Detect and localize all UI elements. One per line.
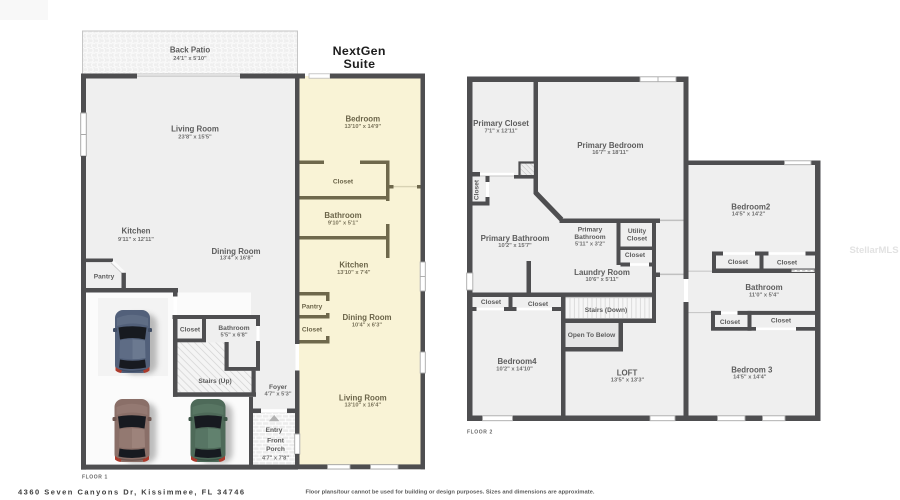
svg-text:24'1" x 5'10": 24'1" x 5'10" [173,56,207,62]
svg-text:Back Patio: Back Patio [170,46,211,55]
svg-text:Open To Below: Open To Below [568,332,616,339]
svg-text:Closet: Closet [528,301,549,308]
svg-text:Living Room: Living Room [339,394,387,403]
svg-text:Pantry: Pantry [302,304,323,311]
svg-text:Front: Front [267,438,285,445]
svg-text:10'6" x 5'11": 10'6" x 5'11" [585,277,618,283]
svg-text:Closet: Closet [333,179,354,186]
svg-text:Bedroom4: Bedroom4 [497,357,537,366]
svg-text:9'10" x 5'1": 9'10" x 5'1" [328,221,359,227]
svg-text:Entry: Entry [266,427,283,434]
svg-text:Kitchen: Kitchen [122,227,151,236]
svg-text:13'5" x 13'3": 13'5" x 13'3" [611,378,645,384]
svg-text:4360 Seven Canyons Dr, Kissimm: 4360 Seven Canyons Dr, Kissimmee, FL 347… [18,488,246,497]
svg-text:Utility: Utility [628,228,647,235]
svg-text:14'5" x 14'2": 14'5" x 14'2" [732,212,766,218]
svg-text:Closet: Closet [625,252,646,259]
svg-text:Foyer: Foyer [269,384,287,391]
svg-text:Bathroom: Bathroom [324,211,361,220]
svg-text:Closet: Closet [180,327,201,334]
svg-text:Primary Bathroom: Primary Bathroom [481,234,550,243]
svg-text:FLOOR 2: FLOOR 2 [467,430,493,436]
svg-text:4'7" x 5'3": 4'7" x 5'3" [264,392,291,398]
svg-text:NextGen: NextGen [333,44,386,58]
svg-text:Bedroom2: Bedroom2 [731,202,771,211]
svg-text:Bedroom: Bedroom [345,114,380,123]
svg-text:11'0" x 5'4": 11'0" x 5'4" [749,293,779,299]
svg-text:Bedroom 3: Bedroom 3 [731,366,773,375]
svg-text:13'10" x 14'9": 13'10" x 14'9" [345,124,382,130]
svg-text:FLOOR 1: FLOOR 1 [82,475,108,481]
svg-text:Dining Room: Dining Room [342,313,391,322]
svg-text:9'11" x 12'11": 9'11" x 12'11" [118,237,154,243]
svg-text:Closet: Closet [777,260,798,267]
svg-text:Kitchen: Kitchen [339,261,368,270]
svg-text:Closet: Closet [302,327,323,334]
svg-text:13'10" x 7'4": 13'10" x 7'4" [337,270,371,276]
svg-text:LOFT: LOFT [617,369,638,378]
svg-text:7'1" x 12'11": 7'1" x 12'11" [484,129,517,135]
svg-text:Suite: Suite [344,57,376,71]
svg-text:Bathroom: Bathroom [745,283,782,292]
svg-text:StellarMLS: StellarMLS [849,245,898,256]
svg-text:Living Room: Living Room [171,125,219,134]
svg-text:Laundry Room: Laundry Room [574,268,630,277]
svg-text:Closet: Closet [728,259,749,266]
svg-text:Closet: Closet [474,179,481,200]
svg-text:10'2" x 15'7": 10'2" x 15'7" [498,243,532,249]
svg-text:13'4" x 16'8": 13'4" x 16'8" [220,256,254,262]
svg-text:Closet: Closet [481,299,502,306]
svg-text:Floor plans/tour cannot be use: Floor plans/tour cannot be used for buil… [306,490,595,496]
svg-text:Closet: Closet [627,236,648,243]
svg-text:Closet: Closet [720,319,741,326]
svg-text:Bathroom: Bathroom [574,234,605,241]
svg-text:14'5" x 14'4": 14'5" x 14'4" [733,375,767,381]
svg-text:10'2" x 14'10": 10'2" x 14'10" [496,367,533,373]
svg-text:Bathroom: Bathroom [218,325,249,332]
svg-text:Primary: Primary [578,227,603,234]
svg-text:4'7" x 7'8": 4'7" x 7'8" [262,456,289,462]
svg-text:5'5" x 6'8": 5'5" x 6'8" [220,333,247,339]
svg-text:13'10" x 16'4": 13'10" x 16'4" [345,403,382,409]
svg-text:23'8" x 15'5": 23'8" x 15'5" [178,135,212,141]
svg-text:Primary Bedroom: Primary Bedroom [577,141,643,150]
svg-text:5'11" x 3'2": 5'11" x 3'2" [575,242,605,248]
svg-text:Stairs (Down): Stairs (Down) [585,307,628,314]
svg-text:Porch: Porch [266,446,285,453]
svg-text:16'7" x 18'11": 16'7" x 18'11" [592,150,629,156]
svg-text:Pantry: Pantry [94,274,115,281]
svg-text:10'4" x 6'3": 10'4" x 6'3" [352,323,383,329]
svg-text:Stairs (Up): Stairs (Up) [198,378,231,385]
svg-text:Primary Closet: Primary Closet [473,119,529,128]
svg-text:Closet: Closet [771,318,792,325]
